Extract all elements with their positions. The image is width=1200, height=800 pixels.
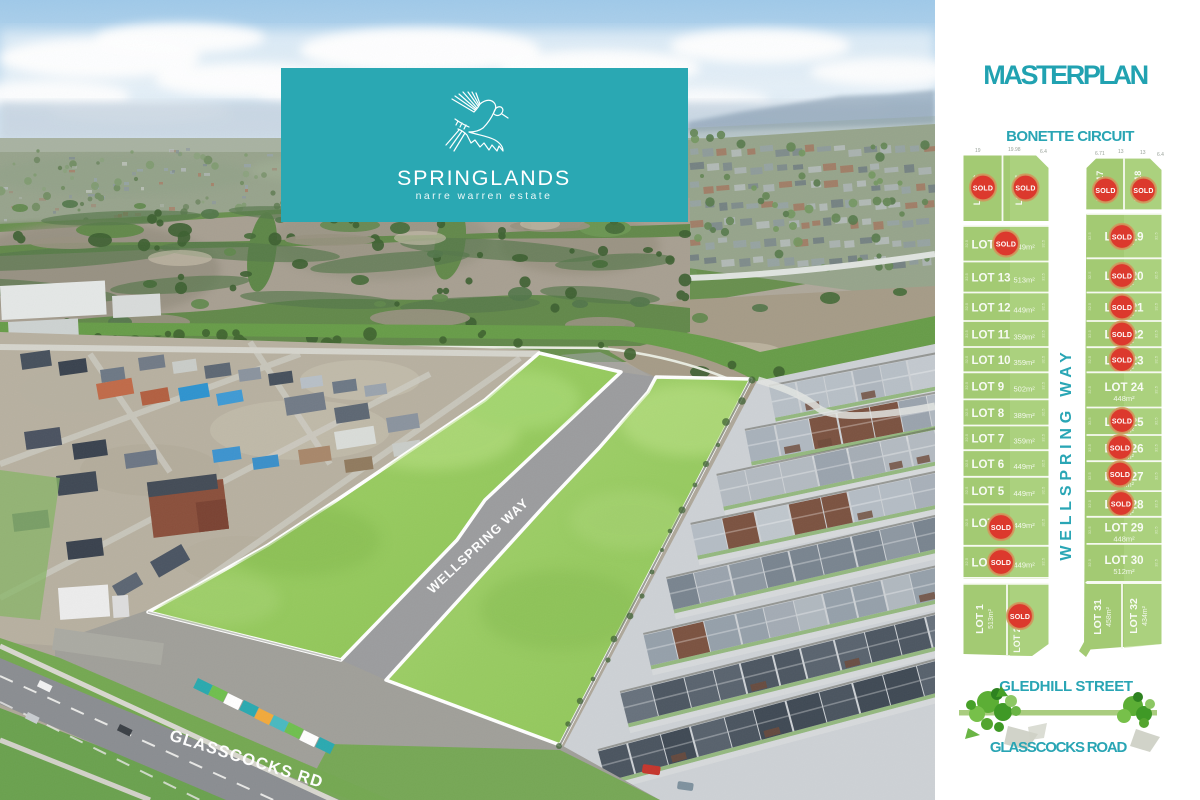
svg-text:32.5: 32.5 [1087, 302, 1092, 311]
svg-text:32.5: 32.5 [1154, 443, 1159, 452]
svg-text:449m²: 449m² [1014, 462, 1036, 471]
svg-text:LOT 9: LOT 9 [972, 381, 1005, 393]
svg-text:BONETTE CIRCUIT: BONETTE CIRCUIT [1006, 128, 1134, 145]
svg-text:13: 13 [1140, 150, 1146, 156]
svg-text:SOLD: SOLD [1095, 188, 1115, 195]
svg-text:SOLD: SOLD [1010, 614, 1030, 621]
svg-text:513m²: 513m² [1014, 276, 1036, 285]
svg-text:SOLD: SOLD [996, 242, 1016, 249]
svg-text:32.5: 32.5 [1087, 385, 1092, 394]
svg-text:32.5: 32.5 [1087, 558, 1092, 567]
svg-text:32.5: 32.5 [964, 381, 969, 390]
svg-text:32.5: 32.5 [1041, 355, 1046, 364]
svg-text:LOT 1: LOT 1 [974, 604, 986, 634]
svg-text:LOT 12: LOT 12 [972, 302, 1011, 314]
svg-text:448m²: 448m² [1113, 394, 1135, 403]
svg-text:32.5: 32.5 [1087, 526, 1092, 535]
svg-text:32.5: 32.5 [1154, 385, 1159, 394]
svg-text:LOT 10: LOT 10 [972, 355, 1011, 367]
svg-text:32.5: 32.5 [1087, 329, 1092, 338]
svg-text:32.5: 32.5 [1087, 443, 1092, 452]
svg-text:32.5: 32.5 [1154, 471, 1159, 480]
svg-text:513m²: 513m² [988, 608, 995, 629]
svg-text:32.5: 32.5 [1087, 355, 1092, 364]
svg-text:SOLD: SOLD [1015, 186, 1035, 193]
svg-text:32.5: 32.5 [1154, 417, 1159, 426]
svg-text:SOLD: SOLD [1112, 235, 1132, 242]
svg-text:32.5: 32.5 [1087, 471, 1092, 480]
svg-text:LOT 29: LOT 29 [1105, 522, 1144, 534]
svg-text:6.71: 6.71 [1095, 151, 1105, 157]
svg-text:LOT 30: LOT 30 [1105, 555, 1144, 567]
svg-text:19: 19 [975, 148, 981, 154]
svg-text:SOLD: SOLD [1112, 419, 1132, 426]
svg-text:SOLD: SOLD [973, 186, 993, 193]
svg-text:32.5: 32.5 [1041, 239, 1046, 248]
svg-text:6.4: 6.4 [1040, 149, 1047, 155]
svg-text:449m²: 449m² [1014, 305, 1036, 314]
svg-text:512m²: 512m² [1113, 567, 1135, 576]
svg-text:SOLD: SOLD [1112, 305, 1132, 312]
svg-text:GLEDHILL STREET: GLEDHILL STREET [999, 678, 1133, 695]
svg-text:32.5: 32.5 [1041, 557, 1046, 566]
svg-text:LOT 6: LOT 6 [972, 459, 1005, 471]
svg-text:359m²: 359m² [1014, 333, 1036, 342]
svg-text:SOLD: SOLD [1112, 358, 1132, 365]
svg-text:19.98: 19.98 [1008, 147, 1021, 153]
svg-text:32.5: 32.5 [1154, 271, 1159, 280]
svg-text:359m²: 359m² [1014, 436, 1036, 445]
svg-text:32.5: 32.5 [1154, 302, 1159, 311]
svg-text:389m²: 389m² [1014, 411, 1036, 420]
svg-text:458m²: 458m² [1106, 606, 1113, 627]
svg-text:32.5: 32.5 [1041, 486, 1046, 495]
svg-text:502m²: 502m² [1014, 384, 1036, 393]
svg-text:LOT 7: LOT 7 [972, 433, 1005, 445]
svg-text:SOLD: SOLD [1133, 188, 1153, 195]
svg-text:32.5: 32.5 [1154, 329, 1159, 338]
svg-text:32.5: 32.5 [964, 459, 969, 468]
svg-text:32.5: 32.5 [964, 433, 969, 442]
svg-text:359m²: 359m² [1014, 358, 1036, 367]
svg-text:32.5: 32.5 [1041, 272, 1046, 281]
svg-text:LOT 11: LOT 11 [972, 330, 1011, 342]
svg-text:13: 13 [1118, 149, 1124, 155]
svg-text:narre warren estate: narre warren estate [416, 190, 553, 202]
svg-text:LOT 8: LOT 8 [972, 408, 1005, 420]
svg-text:32.5: 32.5 [1154, 231, 1159, 240]
svg-text:32.5: 32.5 [1087, 499, 1092, 508]
svg-text:32.5: 32.5 [964, 239, 969, 248]
svg-text:32.5: 32.5 [1041, 329, 1046, 338]
svg-text:SOLD: SOLD [1110, 446, 1130, 453]
svg-text:32.5: 32.5 [964, 272, 969, 281]
svg-text:32.5: 32.5 [1087, 231, 1092, 240]
svg-text:32.5: 32.5 [964, 329, 969, 338]
svg-text:32.5: 32.5 [1041, 408, 1046, 417]
svg-text:32.5: 32.5 [1154, 355, 1159, 364]
svg-text:449m²: 449m² [1014, 521, 1036, 530]
svg-text:LOT 31: LOT 31 [1092, 599, 1104, 635]
svg-text:32.5: 32.5 [1041, 302, 1046, 311]
svg-text:32.5: 32.5 [1154, 558, 1159, 567]
svg-text:SOLD: SOLD [991, 560, 1011, 567]
svg-text:32.5: 32.5 [1041, 518, 1046, 527]
svg-text:LOT 5: LOT 5 [972, 486, 1005, 498]
svg-text:WELLSPRING WAY: WELLSPRING WAY [1058, 347, 1075, 560]
svg-text:32.5: 32.5 [964, 518, 969, 527]
svg-text:449m²: 449m² [1014, 489, 1036, 498]
svg-text:LOT 2: LOT 2 [1012, 627, 1022, 653]
svg-text:32.5: 32.5 [964, 557, 969, 566]
svg-text:GLASSCOCKS ROAD: GLASSCOCKS ROAD [990, 739, 1128, 756]
svg-text:MASTERPLAN: MASTERPLAN [983, 60, 1147, 90]
svg-text:32.5: 32.5 [964, 486, 969, 495]
svg-text:32.5: 32.5 [1087, 417, 1092, 426]
svg-text:32.5: 32.5 [1041, 433, 1046, 442]
svg-text:LOT 13: LOT 13 [972, 273, 1011, 285]
svg-text:SOLD: SOLD [991, 525, 1011, 532]
svg-text:SOLD: SOLD [1112, 332, 1132, 339]
svg-text:32.5: 32.5 [1154, 526, 1159, 535]
svg-text:LOT 32: LOT 32 [1128, 598, 1140, 634]
svg-text:32.5: 32.5 [964, 302, 969, 311]
svg-text:32.5: 32.5 [1154, 499, 1159, 508]
svg-text:448m²: 448m² [1113, 534, 1135, 543]
svg-text:32.5: 32.5 [1041, 381, 1046, 390]
svg-text:6.4: 6.4 [1157, 152, 1164, 158]
svg-text:SPRINGLANDS: SPRINGLANDS [397, 166, 571, 190]
svg-text:LOT 24: LOT 24 [1105, 382, 1145, 394]
svg-text:434m²: 434m² [1142, 605, 1149, 626]
svg-text:SOLD: SOLD [1112, 274, 1132, 281]
svg-text:32.5: 32.5 [1041, 459, 1046, 468]
svg-text:449m²: 449m² [1014, 560, 1036, 569]
svg-text:SOLD: SOLD [1111, 502, 1131, 509]
svg-text:32.5: 32.5 [964, 355, 969, 364]
svg-text:32.5: 32.5 [964, 408, 969, 417]
svg-text:SOLD: SOLD [1110, 472, 1130, 479]
svg-text:32.5: 32.5 [1087, 271, 1092, 280]
